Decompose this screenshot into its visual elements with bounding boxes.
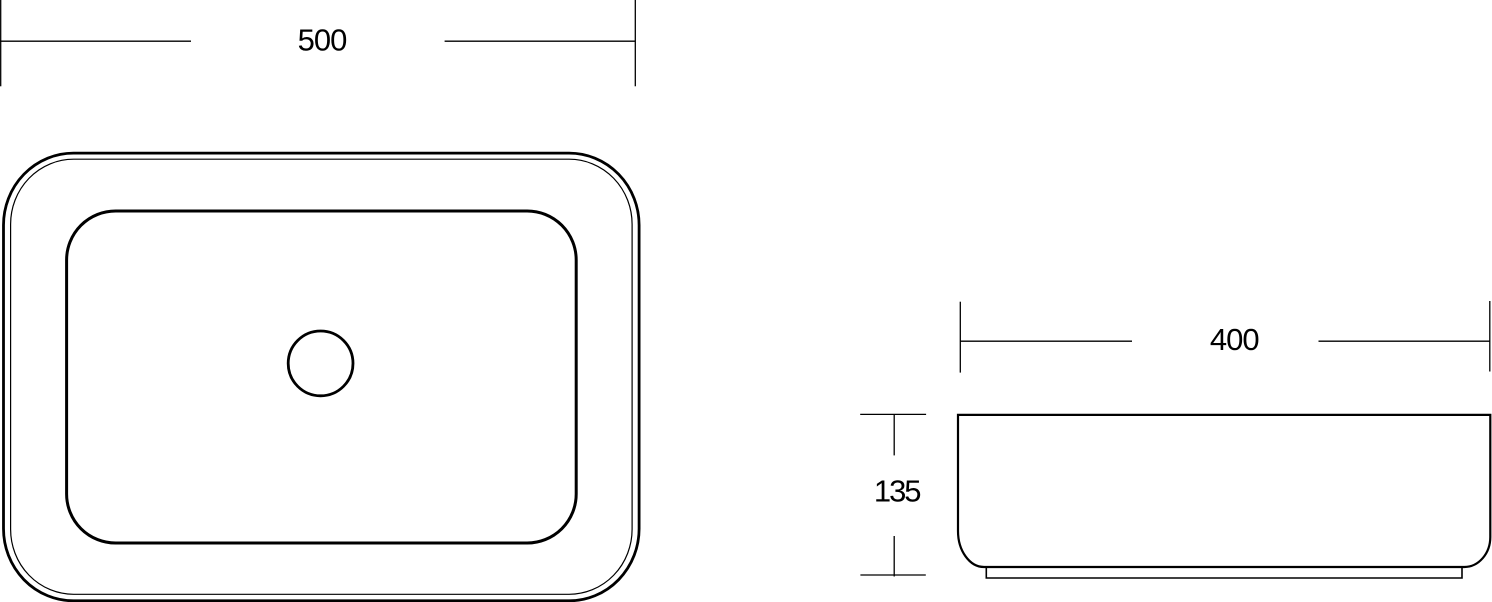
svg-text:135: 135 [874,474,920,509]
svg-text:400: 400 [1210,322,1259,357]
svg-text:500: 500 [298,23,347,58]
